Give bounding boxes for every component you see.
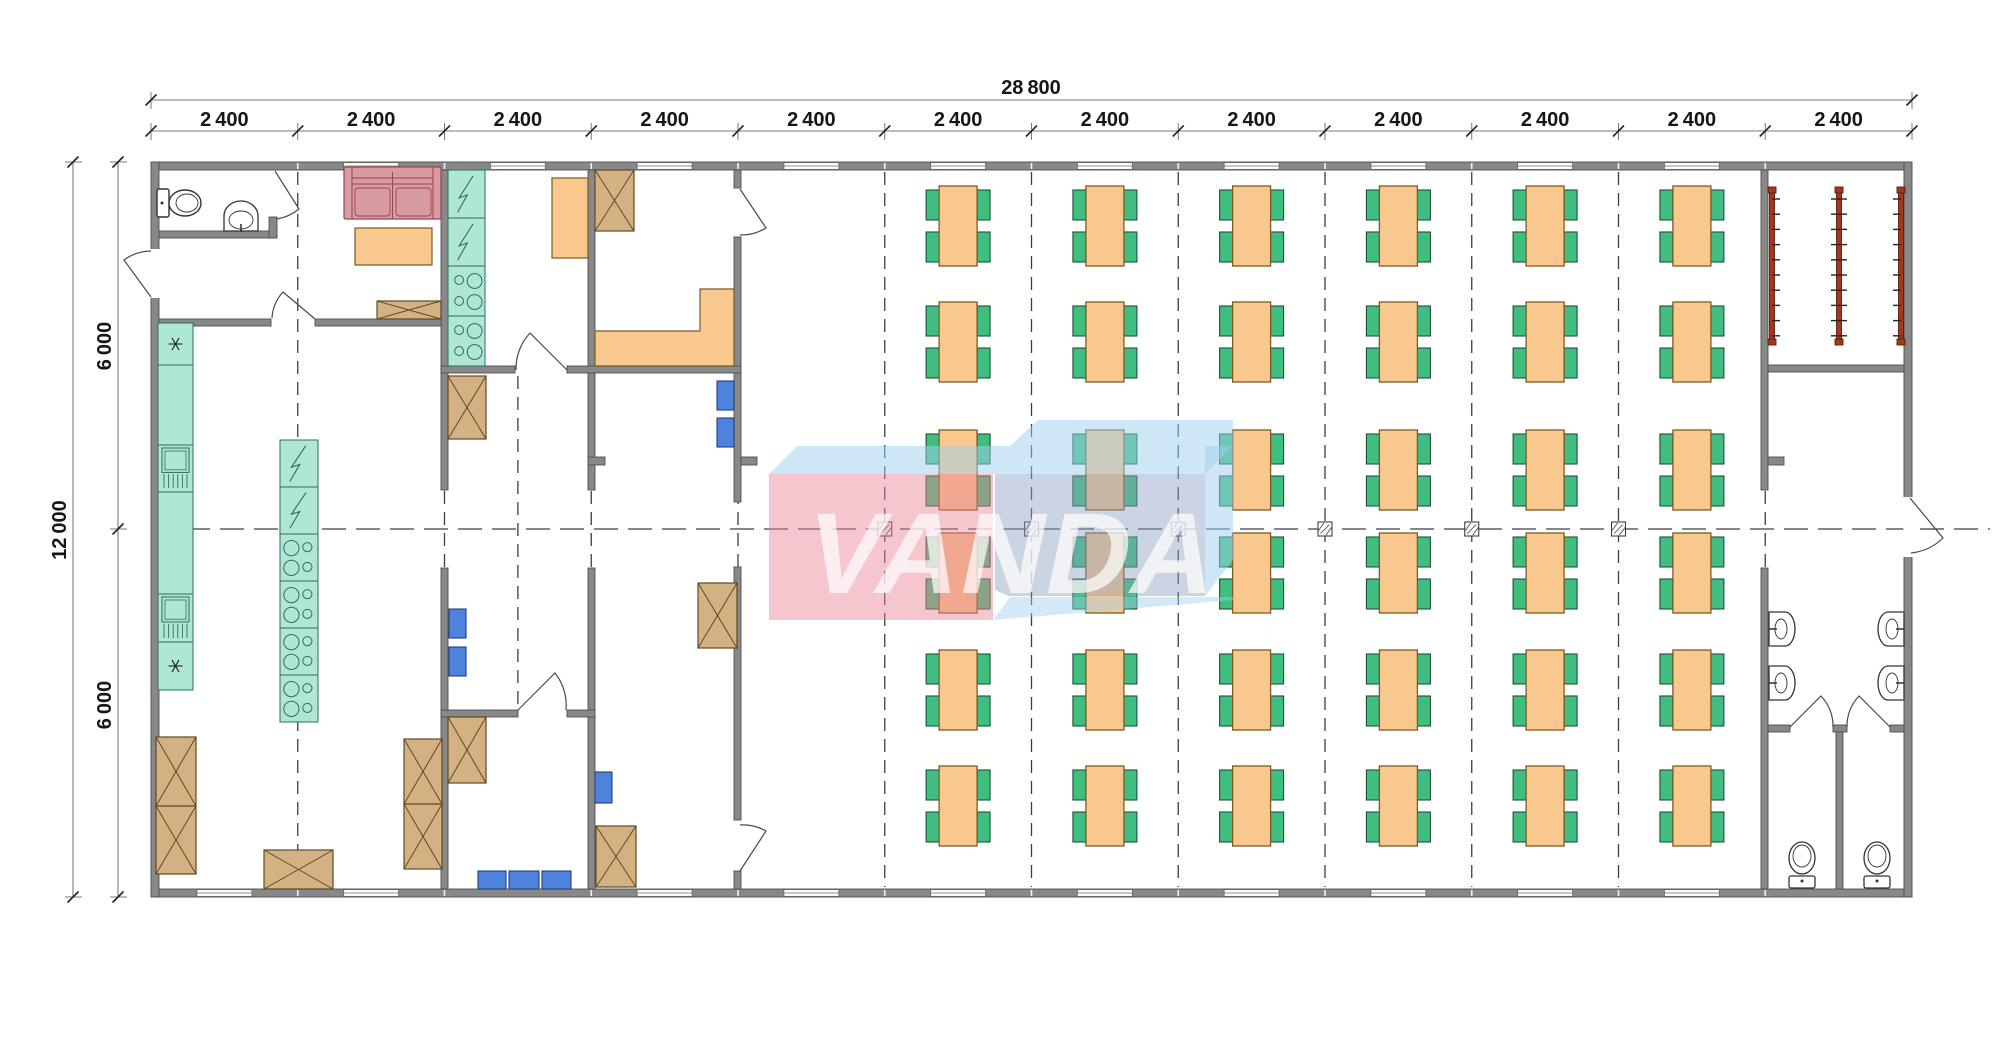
svg-text:2 400: 2 400	[1668, 109, 1717, 131]
svg-text:2 400: 2 400	[1521, 109, 1570, 131]
svg-text:12 000: 12 000	[49, 500, 71, 560]
svg-text:2 400: 2 400	[640, 109, 689, 131]
svg-text:2 400: 2 400	[200, 109, 249, 131]
svg-text:2 400: 2 400	[787, 109, 836, 131]
svg-text:2 400: 2 400	[1081, 109, 1130, 131]
svg-text:2 400: 2 400	[934, 109, 983, 131]
svg-text:2 400: 2 400	[1374, 109, 1423, 131]
svg-text:VANDA: VANDA	[795, 489, 1233, 618]
svg-text:6 000: 6 000	[94, 681, 116, 730]
svg-text:28 800: 28 800	[1001, 77, 1061, 99]
svg-text:2 400: 2 400	[347, 109, 396, 131]
svg-text:2 400: 2 400	[1227, 109, 1276, 131]
svg-text:2 400: 2 400	[1814, 109, 1863, 131]
svg-text:6 000: 6 000	[94, 322, 116, 371]
svg-text:2 400: 2 400	[494, 109, 543, 131]
